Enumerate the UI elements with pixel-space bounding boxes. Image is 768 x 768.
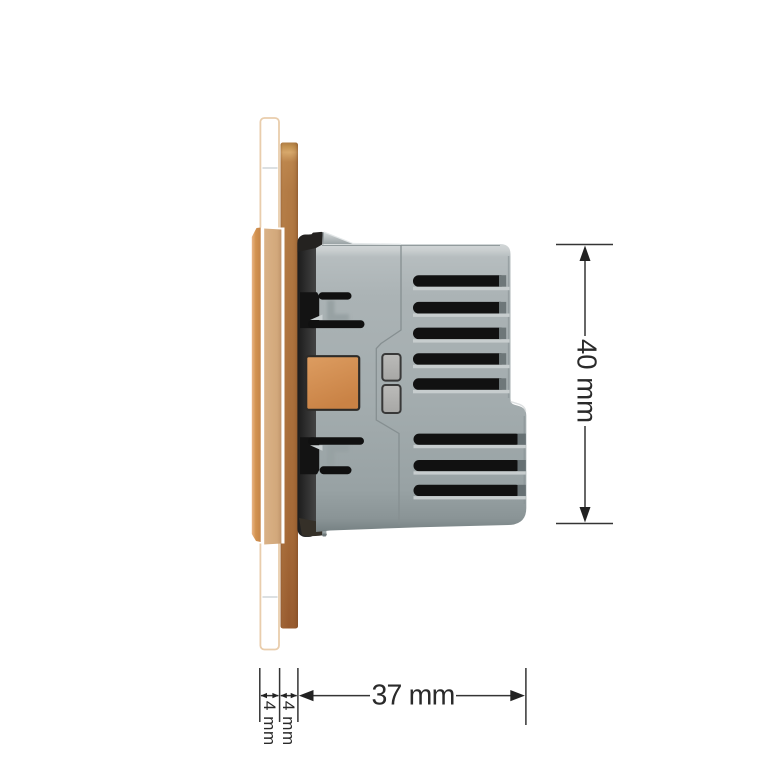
svg-text:37 mm: 37 mm xyxy=(371,680,454,712)
svg-text:40 mm: 40 mm xyxy=(572,339,603,423)
svg-text:4 mm: 4 mm xyxy=(260,701,279,746)
svg-text:4 mm: 4 mm xyxy=(279,701,298,746)
